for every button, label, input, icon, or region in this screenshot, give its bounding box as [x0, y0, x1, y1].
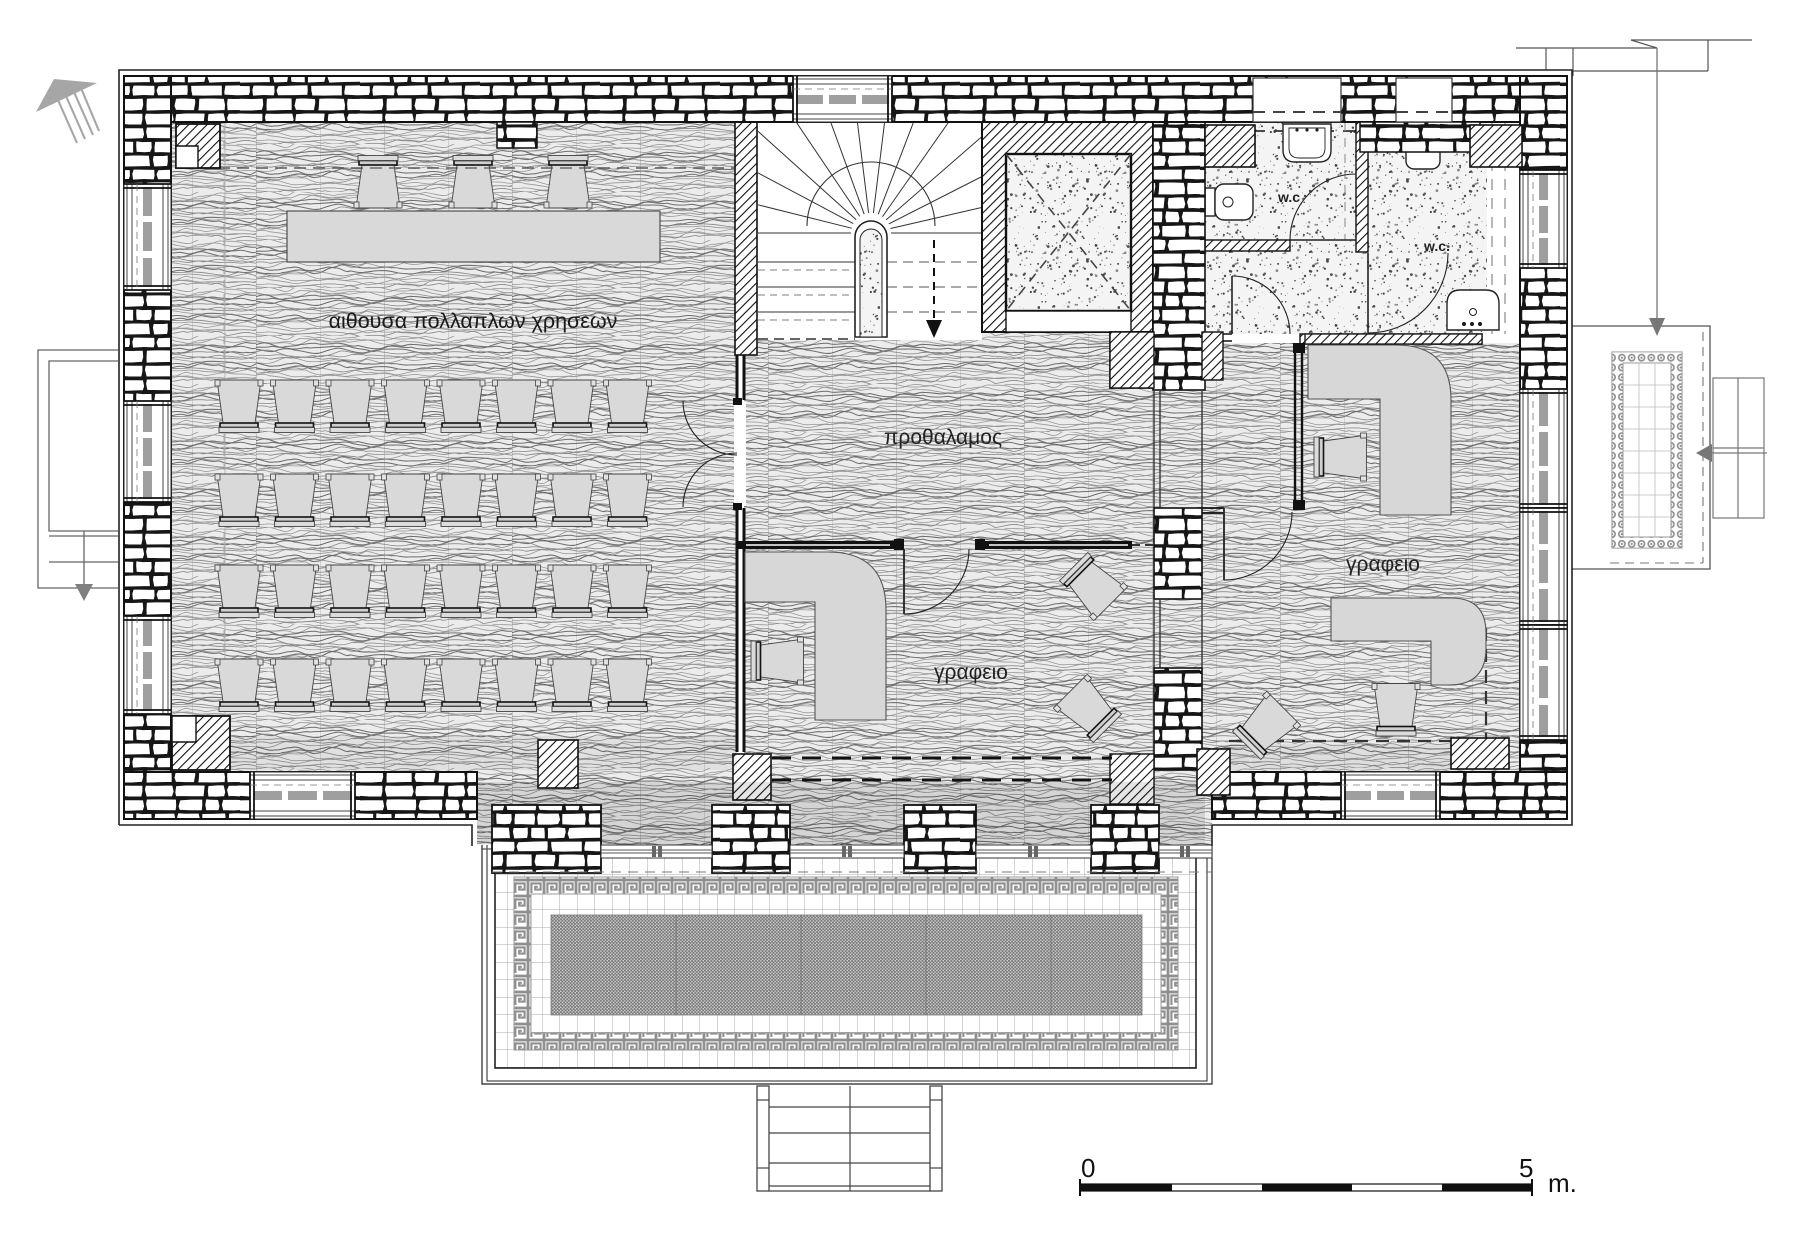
- svg-text:0: 0: [1081, 1153, 1095, 1183]
- svg-text:5: 5: [1519, 1153, 1533, 1183]
- svg-text:w.c: w.c: [1277, 189, 1300, 205]
- svg-text:γραφειο: γραφειο: [934, 661, 1008, 684]
- svg-text:m.: m.: [1548, 1168, 1577, 1198]
- svg-text:προθαλαμος: προθαλαμος: [884, 426, 1002, 449]
- svg-text:αιθουσα πολλαπλων χρησεων: αιθουσα πολλαπλων χρησεων: [329, 309, 618, 333]
- svg-text:γραφειο: γραφειο: [1346, 553, 1420, 576]
- svg-text:w.c.: w.c.: [1423, 238, 1450, 254]
